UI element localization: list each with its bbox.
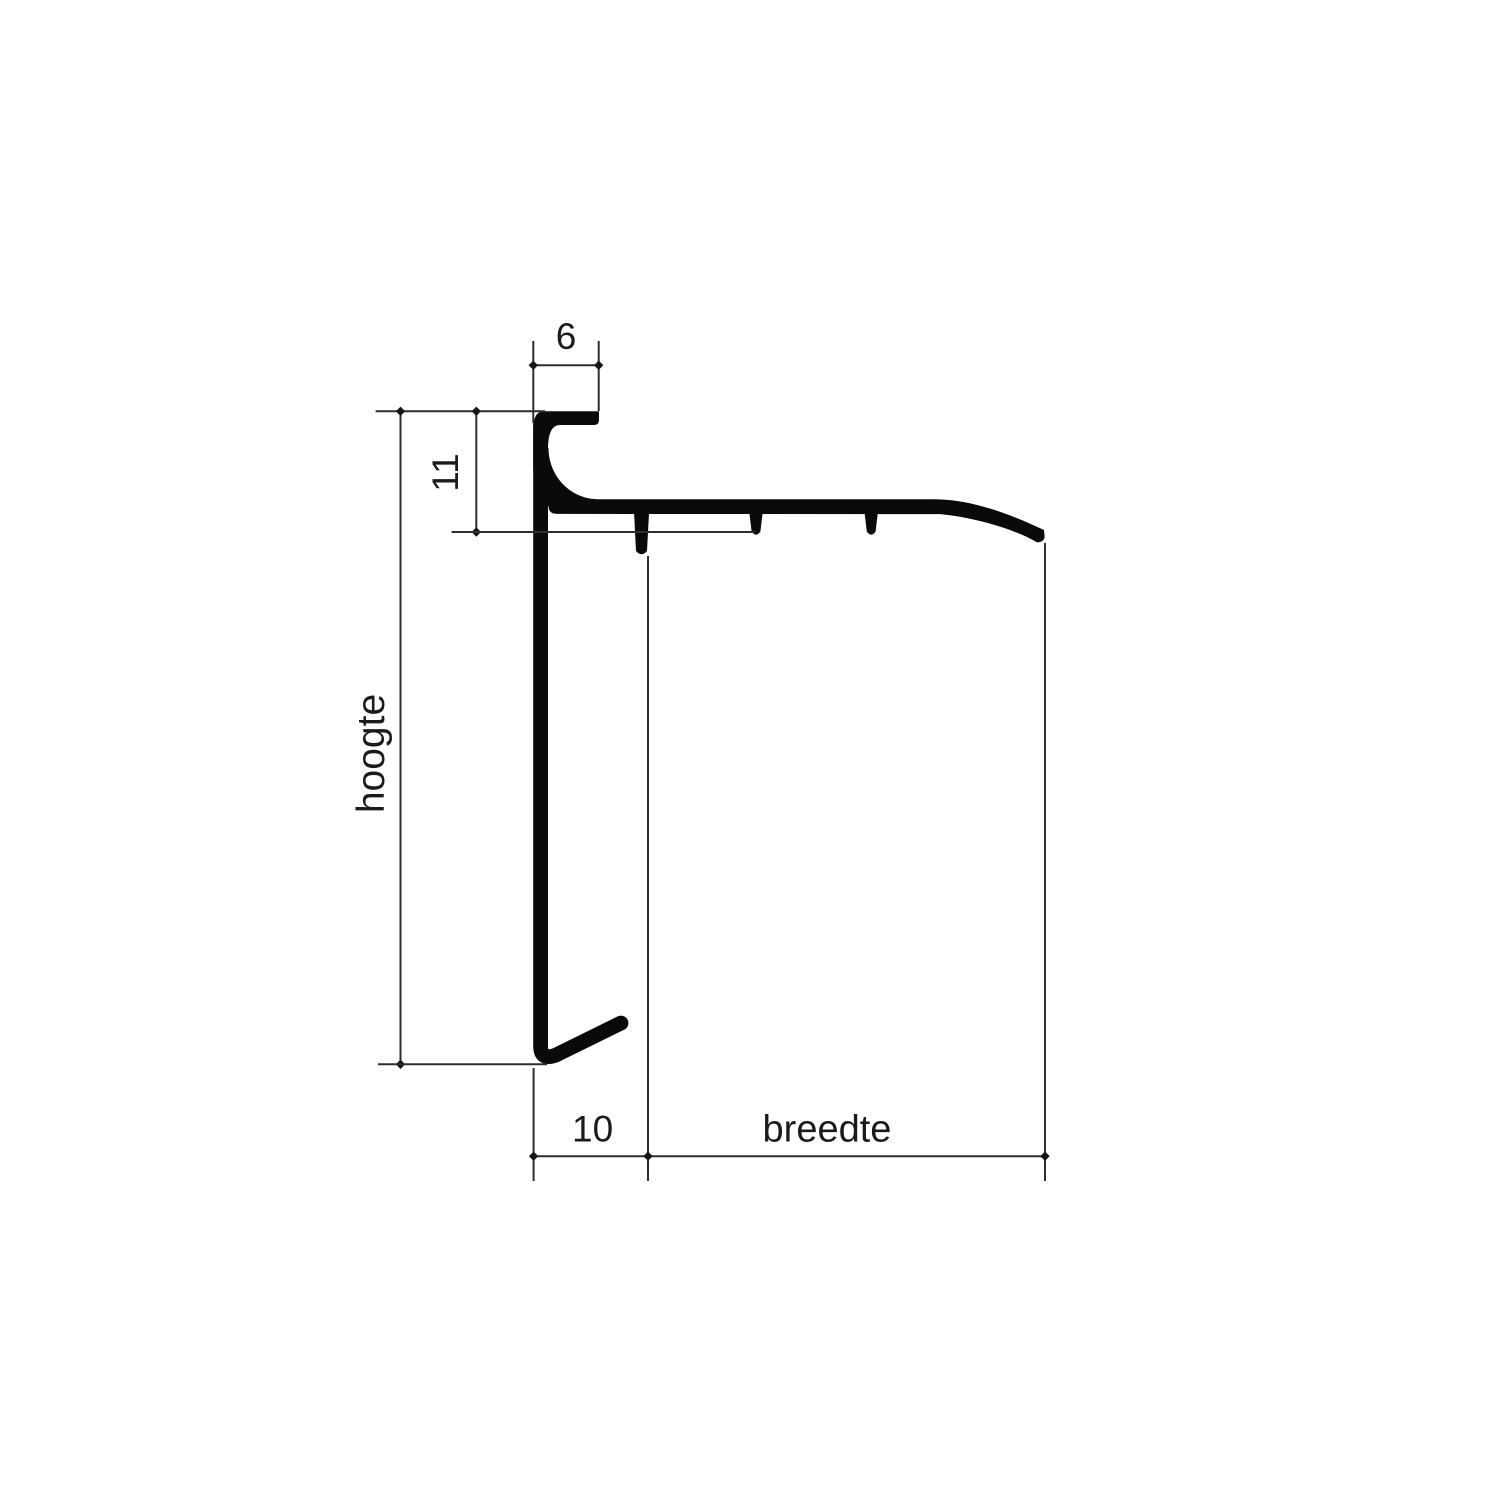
svg-text:breedte: breedte	[763, 1109, 892, 1151]
svg-text:10: 10	[572, 1109, 613, 1150]
svg-text:hoogte: hoogte	[350, 694, 393, 813]
svg-text:11: 11	[425, 453, 466, 491]
svg-text:6: 6	[556, 316, 577, 357]
